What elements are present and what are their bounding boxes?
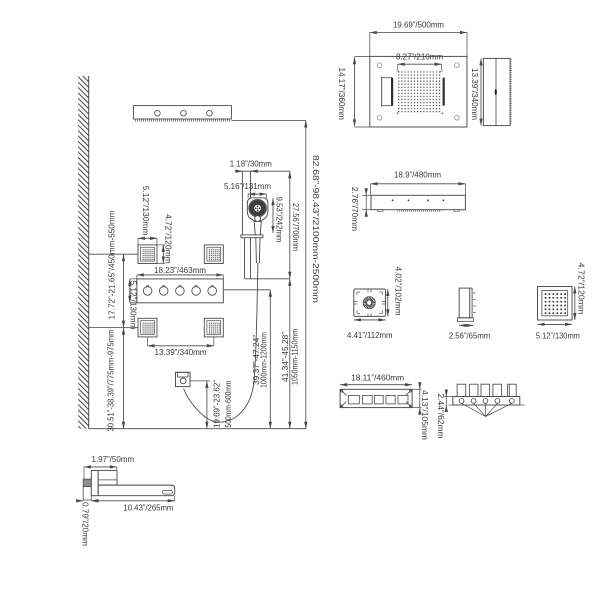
svg-text:500mm-600mm: 500mm-600mm — [223, 380, 233, 427]
svg-text:5.12”/130mm: 5.12”/130mm — [129, 281, 139, 330]
svg-text:14.17”/360mm: 14.17”/360mm — [337, 67, 347, 120]
svg-text:1.97”/50mm: 1.97”/50mm — [91, 454, 134, 464]
svg-text:10.43”/265mm: 10.43”/265mm — [123, 502, 173, 512]
svg-text:2.44”/62mm: 2.44”/62mm — [436, 394, 446, 439]
svg-text:1000mm-1200mm: 1000mm-1200mm — [259, 332, 269, 388]
svg-text:0.79”/20mm: 0.79”/20mm — [81, 502, 91, 546]
svg-text:82.68”-98.43”/2100mm-2500mm: 82.68”-98.43”/2100mm-2500mm — [311, 155, 321, 303]
svg-text:41.34”-45.28”: 41.34”-45.28” — [280, 332, 290, 382]
svg-text:5.16”/131mm: 5.16”/131mm — [224, 181, 271, 191]
svg-text:18.9”/480mm: 18.9”/480mm — [394, 169, 441, 179]
svg-text:9.53”/242mm: 9.53”/242mm — [274, 197, 284, 243]
svg-text:8.27”/210mm: 8.27”/210mm — [396, 51, 443, 61]
svg-text:18.23”/463mm: 18.23”/463mm — [154, 265, 206, 275]
svg-text:27.56”/700mm: 27.56”/700mm — [291, 203, 301, 251]
svg-text:2.76”/70mm: 2.76”/70mm — [350, 187, 360, 231]
svg-text:1.18”/30mm: 1.18”/30mm — [230, 158, 272, 168]
svg-text:19.69”-23.62”: 19.69”-23.62” — [212, 380, 222, 428]
svg-text:19.69”/500mm: 19.69”/500mm — [393, 19, 444, 29]
svg-text:30.51”-38.39”/775mm-975mm: 30.51”-38.39”/775mm-975mm — [106, 329, 116, 431]
svg-text:13.39”/340mm: 13.39”/340mm — [155, 347, 207, 357]
svg-text:4.72”/120mm: 4.72”/120mm — [164, 214, 174, 264]
svg-text:5.12”/130mm: 5.12”/130mm — [536, 330, 580, 340]
svg-text:18.11”/460mm: 18.11”/460mm — [351, 372, 404, 382]
svg-text:17.72”-21.65”/450mm-550mm: 17.72”-21.65”/450mm-550mm — [106, 210, 116, 319]
svg-text:13.39”/340mm: 13.39”/340mm — [470, 68, 480, 120]
svg-text:4.41”/112mm: 4.41”/112mm — [347, 330, 393, 340]
svg-text:4.02”/102mm: 4.02”/102mm — [393, 267, 403, 316]
svg-text:4.72”/120mm: 4.72”/120mm — [577, 263, 587, 315]
svg-text:1050mm-1150mm: 1050mm-1150mm — [290, 329, 300, 385]
svg-text:5.12”/130mm: 5.12”/130mm — [141, 186, 151, 236]
svg-text:4.13”/105mm: 4.13”/105mm — [420, 390, 430, 440]
svg-text:2.56”/65mm: 2.56”/65mm — [449, 330, 490, 340]
